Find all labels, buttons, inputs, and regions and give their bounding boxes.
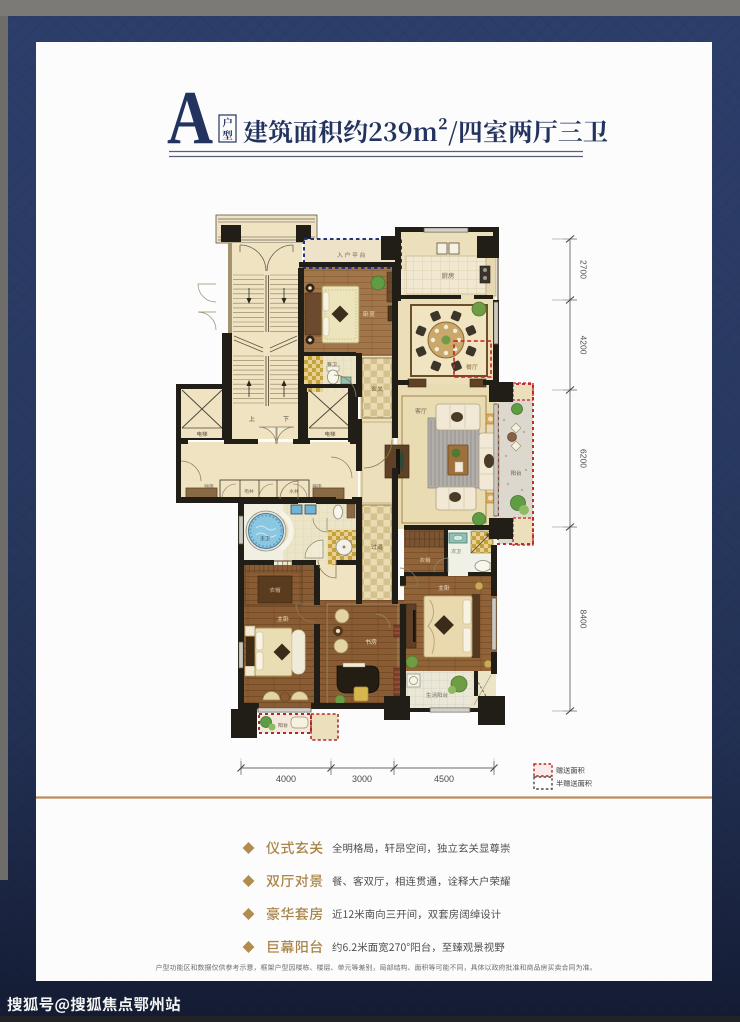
svg-text:A: A (167, 76, 213, 160)
svg-text:4200: 4200 (579, 336, 589, 355)
svg-text:4500: 4500 (434, 774, 454, 784)
svg-text:8400: 8400 (579, 610, 589, 629)
svg-text:2700: 2700 (579, 260, 589, 279)
svg-text:4000: 4000 (276, 774, 296, 784)
svg-text:3000: 3000 (352, 774, 372, 784)
svg-text:6200: 6200 (579, 449, 589, 468)
